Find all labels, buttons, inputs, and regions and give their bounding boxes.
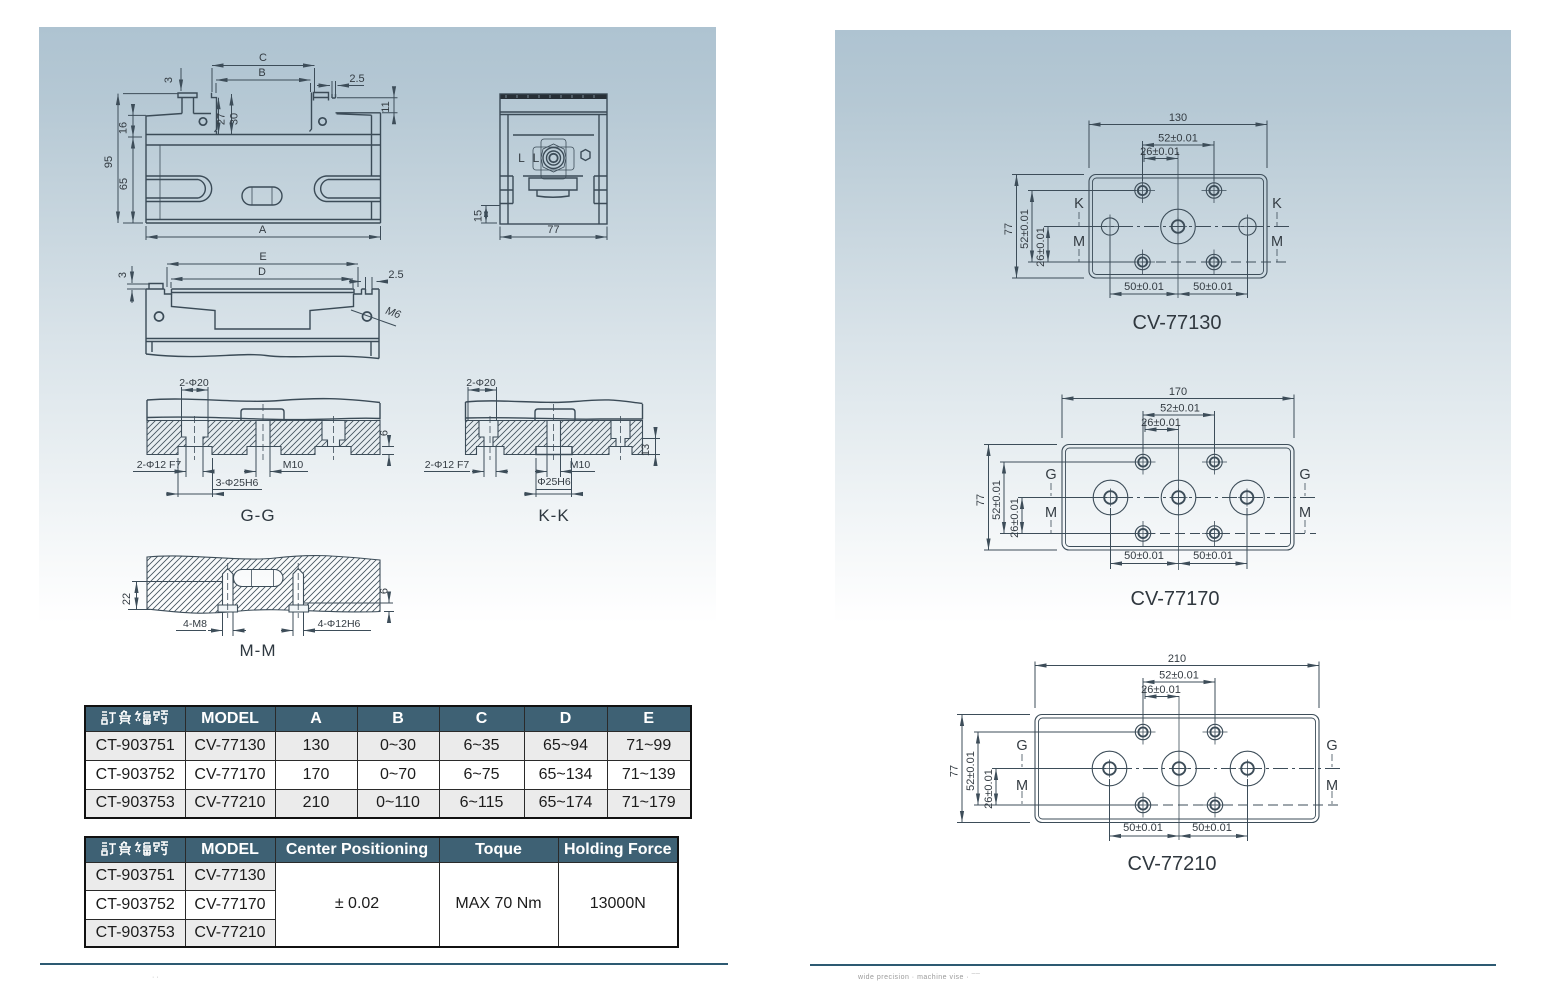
svg-text:M10: M10 xyxy=(570,459,591,471)
svg-text:D: D xyxy=(258,266,266,278)
svg-text:77: 77 xyxy=(949,765,961,777)
svg-text:50±0.01: 50±0.01 xyxy=(1124,281,1164,293)
svg-text:77: 77 xyxy=(547,224,559,236)
svg-text:50±0.01: 50±0.01 xyxy=(1193,281,1233,293)
svg-text:CV-77170: CV-77170 xyxy=(1131,588,1220,610)
svg-text:3: 3 xyxy=(163,77,175,83)
svg-text:CV-77210: CV-77210 xyxy=(1128,853,1217,875)
svg-text:77: 77 xyxy=(1003,223,1015,235)
svg-text:210: 210 xyxy=(1168,653,1186,665)
svg-text:2-Φ12 F7: 2-Φ12 F7 xyxy=(425,459,470,471)
svg-text:26±0.01: 26±0.01 xyxy=(1141,417,1181,429)
svg-text:6: 6 xyxy=(379,430,391,436)
svg-text:3: 3 xyxy=(117,272,129,278)
svg-text:50±0.01: 50±0.01 xyxy=(1193,550,1233,562)
svg-text:M10: M10 xyxy=(283,459,304,471)
svg-text:95: 95 xyxy=(103,156,115,168)
svg-text:52±0.01: 52±0.01 xyxy=(991,480,1003,520)
svg-text:M6: M6 xyxy=(384,305,403,322)
svg-text:52±0.01: 52±0.01 xyxy=(1019,209,1031,249)
svg-text:K-K: K-K xyxy=(538,506,569,525)
svg-text:M: M xyxy=(1016,778,1028,794)
svg-text:M: M xyxy=(1045,505,1057,521)
svg-text:K: K xyxy=(1272,196,1282,212)
svg-text:4-Φ12H6: 4-Φ12H6 xyxy=(318,618,361,630)
svg-text:13: 13 xyxy=(640,444,652,456)
svg-text:27: 27 xyxy=(216,113,228,125)
svg-text:G: G xyxy=(1299,467,1310,483)
svg-text:G: G xyxy=(1326,738,1337,754)
svg-text:170: 170 xyxy=(1169,386,1187,398)
svg-text:M: M xyxy=(1073,234,1085,250)
svg-text:2.5: 2.5 xyxy=(349,73,364,85)
svg-text:26±0.01: 26±0.01 xyxy=(1140,146,1180,158)
svg-text:52±0.01: 52±0.01 xyxy=(1158,133,1198,145)
svg-text:M-M: M-M xyxy=(240,641,277,660)
svg-text:16: 16 xyxy=(118,122,130,134)
svg-text:2-Φ12 F7: 2-Φ12 F7 xyxy=(137,459,182,471)
svg-text:26±0.01: 26±0.01 xyxy=(1009,498,1021,538)
svg-text:M: M xyxy=(1299,505,1311,521)
svg-text:130: 130 xyxy=(1169,112,1187,124)
svg-text:65: 65 xyxy=(118,178,130,190)
svg-text:G: G xyxy=(1016,738,1027,754)
svg-text:K: K xyxy=(1074,196,1084,212)
svg-text:2-Φ20: 2-Φ20 xyxy=(179,377,209,389)
svg-text:M: M xyxy=(1271,234,1283,250)
svg-text:2-Φ20: 2-Φ20 xyxy=(466,377,496,389)
svg-text:50±0.01: 50±0.01 xyxy=(1192,822,1232,834)
svg-text:G: G xyxy=(1045,467,1056,483)
svg-text:52±0.01: 52±0.01 xyxy=(1160,403,1200,415)
svg-text:Φ25H6: Φ25H6 xyxy=(537,476,571,488)
svg-text:2.5: 2.5 xyxy=(388,269,403,281)
svg-text:52±0.01: 52±0.01 xyxy=(965,751,977,791)
svg-text:77: 77 xyxy=(975,494,987,506)
svg-text:11: 11 xyxy=(380,101,392,112)
svg-text:L: L xyxy=(518,151,525,165)
svg-text:6: 6 xyxy=(379,588,391,594)
svg-text:26±0.01: 26±0.01 xyxy=(1141,684,1181,696)
svg-text:26±0.01: 26±0.01 xyxy=(1035,227,1047,267)
svg-text:C: C xyxy=(259,52,267,64)
svg-text:52±0.01: 52±0.01 xyxy=(1159,670,1199,682)
svg-text:4-M8: 4-M8 xyxy=(183,618,207,630)
svg-text:B: B xyxy=(258,67,265,79)
svg-text:50±0.01: 50±0.01 xyxy=(1123,822,1163,834)
svg-text:50±0.01: 50±0.01 xyxy=(1124,550,1164,562)
svg-text:L: L xyxy=(533,151,540,165)
svg-text:30: 30 xyxy=(229,113,241,125)
svg-text:3-Φ25H6: 3-Φ25H6 xyxy=(216,477,259,489)
svg-text:G-G: G-G xyxy=(240,506,275,525)
svg-text:22: 22 xyxy=(121,593,133,605)
svg-text:26±0.01: 26±0.01 xyxy=(983,769,995,809)
svg-text:E: E xyxy=(259,251,266,263)
svg-text:M: M xyxy=(1326,778,1338,794)
svg-text:15: 15 xyxy=(473,210,485,222)
svg-text:A: A xyxy=(259,224,267,236)
svg-text:CV-77130: CV-77130 xyxy=(1133,312,1222,334)
